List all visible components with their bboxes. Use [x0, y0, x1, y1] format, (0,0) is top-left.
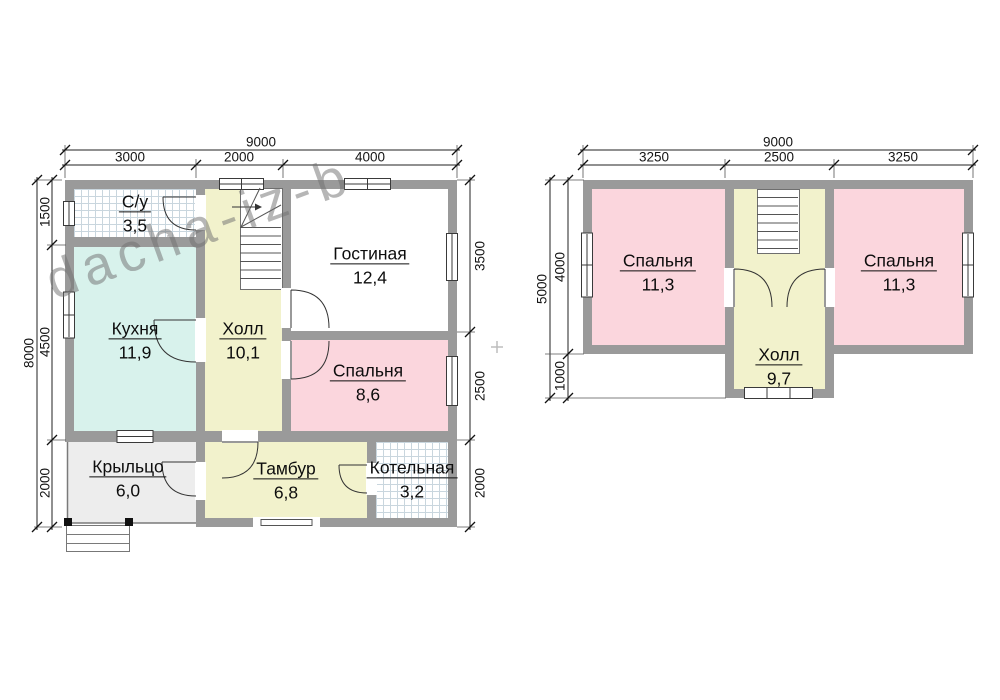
dim-f2-top-1: 3250	[639, 150, 669, 165]
dim-f1-left-1: 1500	[38, 197, 53, 227]
room-area: 8,6	[330, 383, 406, 407]
room-name: Спальня	[620, 250, 696, 271]
room-label-boiler: Котельная 3,2	[367, 456, 458, 503]
dim-f1-right-1: 3500	[473, 241, 488, 271]
dim-f1-top-2: 2000	[224, 150, 254, 165]
room-label-kitchen: Кухня 11,9	[109, 317, 162, 364]
room-label-hall-1: Холл 10,1	[219, 317, 266, 364]
dim-f1-top-total: 9000	[246, 135, 276, 150]
dim-f2-top-2: 2500	[764, 150, 794, 165]
room-area: 6,8	[253, 481, 318, 505]
dim-f2-top-3: 3250	[888, 150, 918, 165]
room-area: 11,3	[861, 273, 937, 297]
room-label-bedroom-2r: Спальня 11,3	[861, 249, 937, 296]
extension-lines	[34, 145, 973, 527]
dim-f1-right-3: 2000	[473, 468, 488, 498]
room-name: Кухня	[109, 318, 162, 339]
dim-f2-top-total: 9000	[763, 135, 793, 150]
room-area: 3,5	[119, 214, 151, 238]
room-name: Холл	[755, 344, 802, 365]
room-area: 11,9	[109, 341, 162, 365]
room-name: Спальня	[861, 250, 937, 271]
room-name: Гостиная	[330, 243, 409, 264]
dim-f1-top-1: 3000	[115, 150, 145, 165]
room-label-bedroom-2l: Спальня 11,3	[620, 249, 696, 296]
dim-f1-right-2: 2500	[473, 371, 488, 401]
dim-f1-left-2: 4500	[38, 327, 53, 357]
room-area: 10,1	[219, 341, 266, 365]
dim-f1-left-3: 2000	[38, 468, 53, 498]
room-area: 11,3	[620, 273, 696, 297]
room-name: С/у	[119, 191, 151, 212]
room-name: Холл	[219, 318, 266, 339]
dim-f2-left-1: 4000	[553, 252, 568, 282]
room-label-tambour: Тамбур 6,8	[253, 457, 318, 504]
room-label-porch: Крыльцо 6,0	[89, 455, 166, 502]
room-label-bathroom: С/у 3,5	[119, 190, 151, 237]
room-name: Спальня	[330, 360, 406, 381]
dim-f2-left-total: 5000	[535, 274, 550, 304]
room-name: Крыльцо	[89, 456, 166, 477]
room-area: 3,2	[367, 480, 458, 504]
room-area: 6,0	[89, 479, 166, 503]
room-label-hall-2: Холл 9,7	[755, 343, 802, 390]
entrance-door	[261, 520, 312, 526]
room-name: Тамбур	[253, 458, 318, 479]
room-label-living: Гостиная 12,4	[330, 242, 409, 289]
room-name: Котельная	[367, 457, 458, 478]
dim-f2-left-2: 1000	[553, 361, 568, 391]
floorplan-canvas: dacha-iz-b С/у 3,5 Кухня 11,9 Холл 10,1 …	[0, 0, 1000, 700]
dim-f1-left-total: 8000	[22, 338, 37, 368]
room-area: 12,4	[330, 266, 409, 290]
room-label-bedroom-1: Спальня 8,6	[330, 359, 406, 406]
room-area: 9,7	[755, 367, 802, 391]
dim-f1-top-3: 4000	[355, 150, 385, 165]
